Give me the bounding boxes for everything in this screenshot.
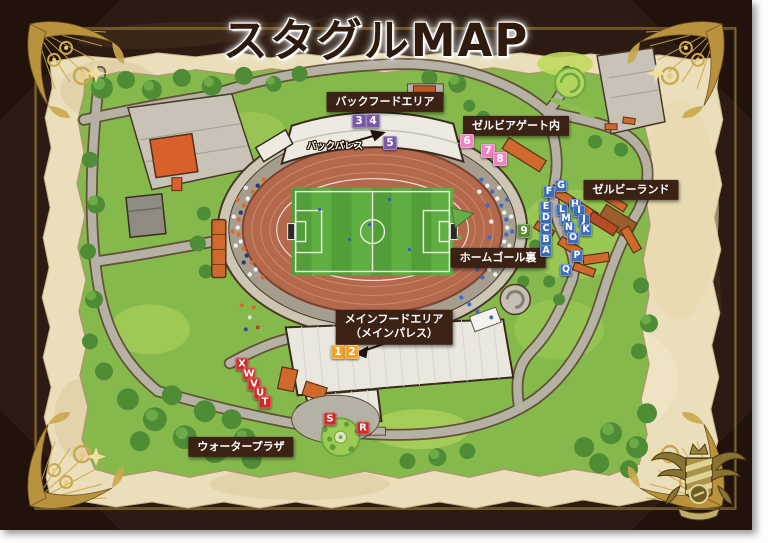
map-marker-G: G [555, 180, 567, 192]
map-marker-Q: Q [560, 264, 572, 276]
area-label-zelvy-land: ゼルビーランド [584, 180, 679, 200]
area-label-main-food-area: メインフードエリア（メインパレス） [336, 310, 453, 345]
map-marker-2: 2 [345, 345, 359, 359]
overlay-layer: バックフードエリアゼルビアゲート内ゼルビーランドホームゴール裏メインフードエリア… [0, 0, 752, 530]
map-marker-8: 8 [493, 152, 507, 166]
map-marker-F: F [543, 186, 555, 198]
map-marker-5: 5 [383, 136, 397, 150]
map-marker-P: P [571, 250, 583, 262]
area-label-zelvia-gate: ゼルビアゲート内 [463, 116, 569, 136]
area-label-back-palace: バックパレス [307, 141, 364, 153]
map-marker-O: O [567, 232, 579, 244]
map-marker-1: 1 [331, 345, 345, 359]
map-marker-R: R [357, 422, 370, 435]
area-label-water-plaza: ウォータープラザ [188, 437, 293, 457]
map-marker-K: K [580, 224, 592, 236]
map-marker-4: 4 [366, 114, 380, 128]
stadium-gourmet-map-poster: スタグルMAP バックフードエリアゼルビアゲート内ゼルビーランドホームゴール裏メ… [0, 0, 752, 530]
map-marker-9: 9 [517, 224, 531, 238]
map-marker-S: S [324, 413, 337, 426]
area-label-back-food-area: バックフードエリア [327, 92, 444, 112]
map-marker-A: A [540, 245, 552, 257]
map-marker-T: T [259, 396, 272, 409]
map-marker-6: 6 [460, 134, 474, 148]
area-label-home-goal-back: ホームゴール裏 [451, 248, 546, 268]
map-marker-3: 3 [352, 114, 366, 128]
